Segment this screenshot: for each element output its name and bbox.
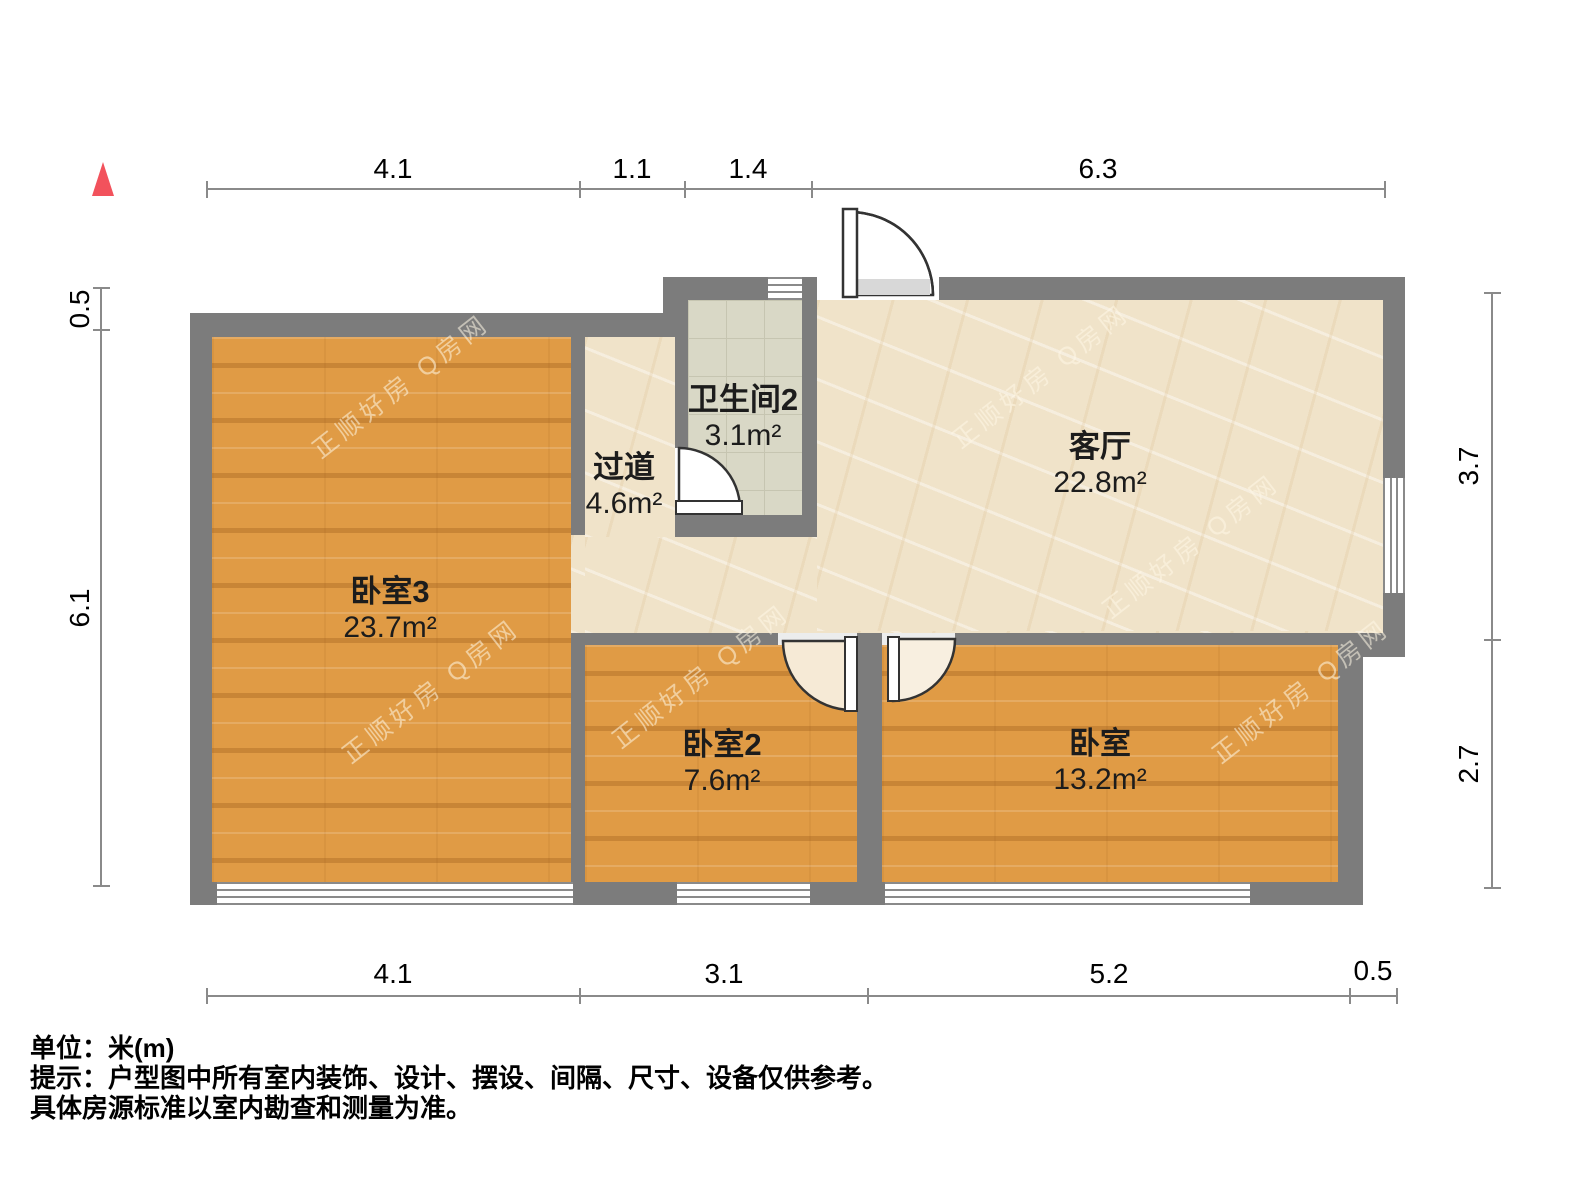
- room-name: 卧室2: [682, 726, 761, 763]
- dim-top-4: 6.3: [1079, 153, 1118, 185]
- bedroom2-door-gap: [778, 633, 857, 645]
- room-name: 卫生间2: [688, 381, 798, 418]
- wall-bedrooms-top: [571, 633, 1405, 645]
- room-area: 3.1m²: [688, 418, 798, 453]
- dim-right-1: 3.7: [1453, 447, 1485, 486]
- bedroom2-window: [677, 882, 810, 905]
- bedroom1-window: [885, 882, 1250, 905]
- wall-bathroom-left: [675, 300, 688, 450]
- dim-bottom-4: 0.5: [1354, 955, 1393, 987]
- room-area: 23.7m²: [343, 610, 436, 645]
- wall-right: [1383, 277, 1405, 657]
- room-label-bathroom2: 卫生间2 3.1m²: [688, 381, 798, 453]
- room-label-bedroom2: 卧室2 7.6m²: [682, 726, 761, 798]
- room-label-hallway: 过道 4.6m²: [586, 449, 663, 521]
- room-label-bedroom1: 卧室 13.2m²: [1053, 725, 1146, 797]
- room-name: 卧室3: [343, 573, 436, 610]
- room-name: 客厅: [1053, 428, 1146, 465]
- dim-bottom-2: 3.1: [705, 958, 744, 990]
- room-label-bedroom3: 卧室3 23.7m²: [343, 573, 436, 645]
- room-area: 4.6m²: [586, 486, 663, 521]
- wall-bed1-right: [1338, 645, 1363, 905]
- dim-bottom-3: 5.2: [1090, 958, 1129, 990]
- floorplan-canvas: 正顺好房 Q房网 正顺好房 Q房网 正顺好房 Q房网 正顺好房 Q房网 正顺好房…: [0, 0, 1594, 1184]
- doorway-threshold: [571, 535, 585, 633]
- north-arrow-icon: [92, 162, 114, 196]
- wall-bathroom-bottom: [675, 515, 817, 537]
- dim-right-2: 2.7: [1453, 745, 1485, 784]
- room-area: 22.8m²: [1053, 465, 1146, 500]
- entry-door-gap: [817, 277, 939, 300]
- room-area: 7.6m²: [682, 763, 761, 798]
- bedroom3-window: [217, 882, 573, 905]
- bathroom-window: [768, 277, 802, 300]
- bedroom1-door-gap: [882, 633, 955, 645]
- room-area: 13.2m²: [1053, 762, 1146, 797]
- dim-bottom-1: 4.1: [374, 958, 413, 990]
- dim-top-2: 1.1: [613, 153, 652, 185]
- unit-note: 单位：米(m): [30, 1033, 888, 1063]
- tip-line-1: 提示：户型图中所有室内装饰、设计、摆设、间隔、尺寸、设备仅供参考。: [30, 1063, 888, 1093]
- dim-top-3: 1.4: [729, 153, 768, 185]
- wall-bathroom-right: [802, 300, 817, 515]
- dim-top-1: 4.1: [374, 153, 413, 185]
- wall-hallway-left: [571, 337, 585, 535]
- tip-line-2: 具体房源标准以室内勘查和测量为准。: [30, 1093, 888, 1123]
- room-name: 卧室: [1053, 725, 1146, 762]
- room-name: 过道: [586, 449, 663, 486]
- wall-bed2-bed1: [857, 633, 882, 905]
- dim-left-1: 0.5: [64, 290, 96, 329]
- wall-left: [190, 313, 212, 905]
- disclaimer-notes: 单位：米(m) 提示：户型图中所有室内装饰、设计、摆设、间隔、尺寸、设备仅供参考…: [30, 1033, 888, 1123]
- bathroom-door-gap: [675, 448, 688, 510]
- room-label-livingroom: 客厅 22.8m²: [1053, 428, 1146, 500]
- dim-left-2: 6.1: [64, 589, 96, 628]
- wall-bed3-bed2: [571, 633, 585, 905]
- wall-top-left: [190, 313, 663, 337]
- livingroom-window: [1383, 478, 1405, 593]
